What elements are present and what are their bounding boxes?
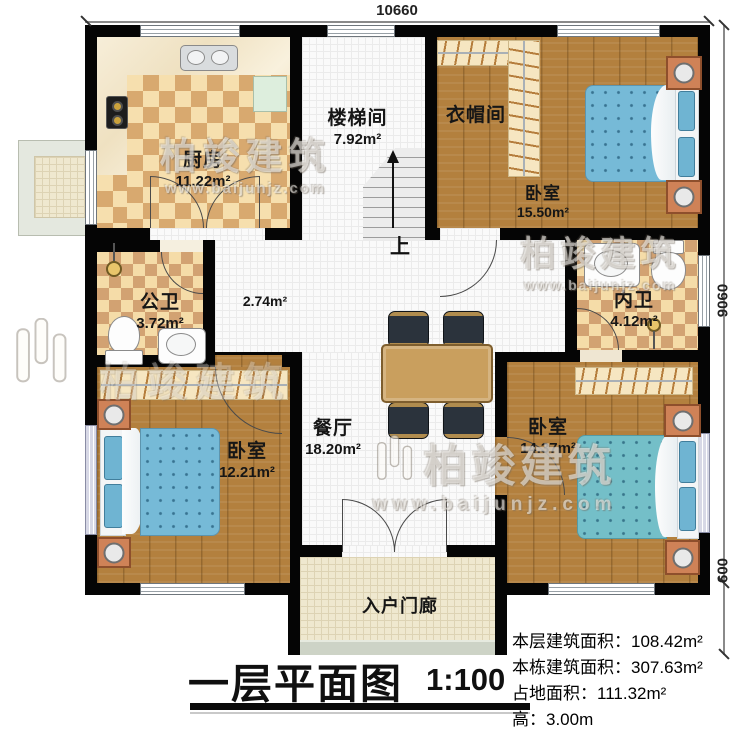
- room-area: 2.74m²: [230, 293, 300, 310]
- bedroom-tr-window: [557, 25, 660, 37]
- ensuite-window: [698, 255, 710, 327]
- kitchen-counter-appliance: [253, 76, 287, 112]
- public-bath-sink: [158, 328, 206, 364]
- ensuite-toilet: [650, 240, 686, 290]
- room-name: 卧室: [197, 441, 297, 464]
- plan-scale: 1:100: [426, 662, 505, 698]
- stat-value: 108.42m²: [631, 629, 703, 655]
- stat-line: 占地面积：111.32m²: [512, 681, 750, 707]
- toilet-tank: [105, 350, 143, 365]
- stairwell-label: 楼梯间 7.92m²: [295, 108, 420, 149]
- stat-label: 本层建筑面积：: [512, 629, 631, 655]
- nightstand: [666, 180, 702, 214]
- room-name: 卧室: [493, 184, 593, 204]
- nightstand-clock: [104, 404, 125, 425]
- stat-label: 占地面积：: [512, 681, 597, 707]
- right-lower-dimension-value: 600: [715, 551, 732, 591]
- bedroom-br-side-window: [698, 433, 710, 533]
- ensuite-door-opening: [580, 350, 622, 362]
- bed-pillow: [679, 441, 696, 483]
- floor-plan-canvas: 上: [0, 0, 750, 734]
- nightstand: [665, 540, 700, 575]
- cloakroom-wardrobe-top: [437, 40, 510, 66]
- watermark-logo-icon: [12, 318, 72, 395]
- nightstand: [97, 537, 131, 568]
- stat-line: 高：3.00m: [512, 707, 750, 733]
- room-area: 7.92m²: [295, 131, 420, 149]
- bedroom-bl-label: 卧室 12.21m²: [197, 441, 297, 482]
- stat-value: 307.63m²: [631, 655, 703, 681]
- nightstand-clock: [674, 63, 695, 84]
- public-bath-door-opening: [160, 240, 203, 252]
- dining-table: [381, 344, 493, 403]
- bed-sheet: [651, 85, 677, 180]
- nightstand-clock: [672, 547, 693, 568]
- room-name: 卧室: [498, 417, 598, 440]
- bed-top-right: [585, 85, 697, 180]
- dining-chair: [388, 311, 429, 348]
- stat-line: 本栋建筑面积：307.63m²: [512, 655, 750, 681]
- room-name: 入户门廊: [340, 596, 460, 618]
- kitchen-stove: [106, 96, 128, 129]
- stair-up-label: 上: [384, 230, 416, 259]
- public-bath-light: [113, 243, 115, 263]
- bedroom-br-wardrobe: [575, 367, 693, 395]
- bedroom-br-window: [548, 583, 655, 595]
- title-underline: [190, 703, 530, 710]
- room-name: 楼梯间: [295, 108, 420, 131]
- bedroom-br-label: 卧室 14.37m²: [498, 417, 598, 458]
- kitchen-label: 厨房 11.22m²: [148, 150, 258, 191]
- sink-bowl: [187, 50, 205, 65]
- dining-label: 餐厅 18.20m²: [283, 418, 383, 459]
- cloakroom-door-opening: [440, 228, 500, 240]
- stairwell-window: [327, 25, 395, 37]
- stove-burner: [112, 101, 123, 112]
- room-area: 15.50m²: [493, 204, 593, 221]
- sink-basin: [594, 250, 628, 277]
- stat-label: 高：: [512, 707, 546, 733]
- kitchen-window: [140, 25, 240, 37]
- title-underline-shadow: [190, 712, 530, 714]
- plan-title: 一层平面图: [188, 650, 403, 710]
- ensuite-label: 内卫 4.12m²: [584, 290, 684, 331]
- bed-pillow: [104, 436, 123, 480]
- room-name: 厨房: [148, 150, 258, 173]
- room-area: 14.37m²: [498, 440, 598, 458]
- platform-door: [85, 150, 97, 225]
- room-area: 4.12m²: [584, 313, 684, 331]
- bed-pillow: [679, 487, 696, 531]
- kitchen-sink: [180, 45, 238, 71]
- ensuite-light: [653, 331, 655, 349]
- nightstand: [664, 404, 701, 437]
- room-area: 11.22m²: [148, 173, 258, 191]
- kitchen-tile-strip: [97, 175, 127, 228]
- top-dimension-line: [85, 21, 710, 23]
- stat-label: 本栋建筑面积：: [512, 655, 631, 681]
- room-area: 12.21m²: [197, 464, 297, 482]
- nightstand: [97, 399, 131, 430]
- dining-chair: [388, 402, 429, 439]
- stair-arrow-shaft: [392, 162, 394, 228]
- room-name: 内卫: [584, 290, 684, 313]
- area-stats: 本层建筑面积：108.42m² 本栋建筑面积：307.63m² 占地面积：111…: [512, 629, 750, 733]
- room-area: 18.20m²: [283, 441, 383, 459]
- room-name: 公卫: [110, 292, 210, 315]
- right-dimension-value: 9060: [715, 276, 732, 326]
- top-dimension-value: 10660: [347, 2, 447, 19]
- nightstand-clock: [104, 542, 125, 563]
- bed-pillow: [678, 91, 695, 131]
- bed-pillow: [104, 484, 123, 528]
- nightstand: [666, 56, 702, 90]
- bedroom-bl-window: [140, 583, 245, 595]
- stair-arrow-head: [387, 150, 399, 163]
- hallway-label: 2.74m²: [230, 293, 300, 310]
- bedroom-tr-label: 卧室 15.50m²: [493, 184, 593, 221]
- ensuite-sink: [584, 243, 640, 287]
- public-bath-label: 公卫 3.72m²: [110, 292, 210, 333]
- dining-chair: [443, 311, 484, 348]
- room-name: 衣帽间: [426, 105, 526, 128]
- bedroom-bl-side-window: [85, 425, 97, 535]
- nightstand-clock: [672, 410, 693, 431]
- bed-pillow: [678, 137, 695, 177]
- bed-sheet: [655, 435, 679, 537]
- dining-chair: [443, 402, 484, 439]
- sink-basin: [166, 333, 196, 356]
- stat-value: 3.00m: [546, 707, 593, 733]
- public-bath-light-bulb: [106, 261, 122, 277]
- kitchen-door-opening: [150, 228, 265, 240]
- cloakroom-label: 衣帽间: [426, 105, 526, 128]
- toilet-bowl: [651, 252, 686, 290]
- stat-line: 本层建筑面积：108.42m²: [512, 629, 750, 655]
- room-name: 餐厅: [283, 418, 383, 441]
- nightstand-clock: [674, 187, 695, 208]
- stat-value: 111.32m²: [597, 681, 666, 707]
- stove-burner: [112, 115, 123, 126]
- sink-bowl: [211, 50, 229, 65]
- porch-label: 入户门廊: [340, 596, 460, 618]
- room-area: 3.72m²: [110, 315, 210, 333]
- bedroom-bl-door-opening: [215, 355, 282, 367]
